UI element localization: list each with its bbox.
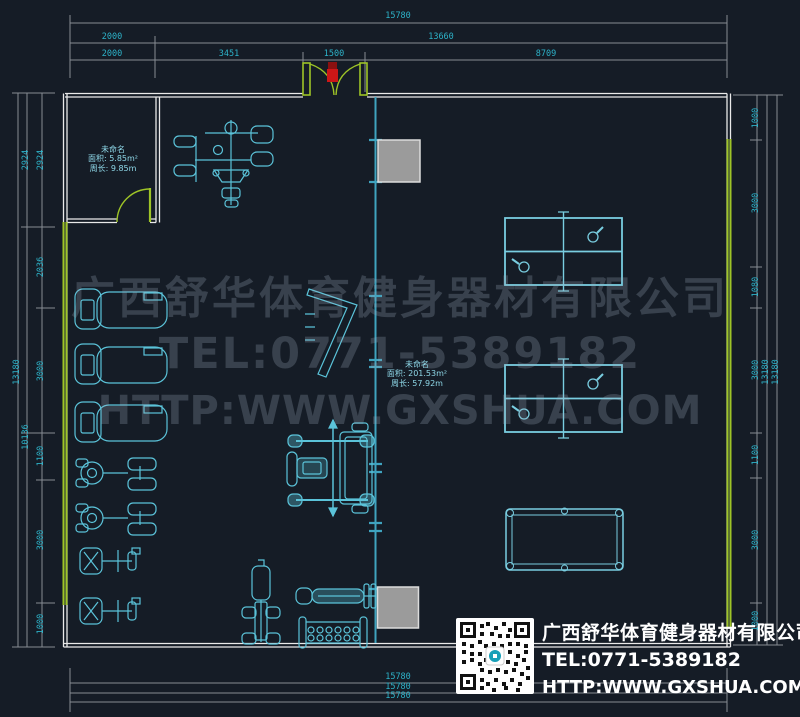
multi-gym-machine — [174, 120, 273, 207]
watermark-company: 广西舒华体育健身器材有限公司 — [71, 262, 729, 326]
billiard-table — [506, 508, 623, 571]
company-info-block: 广西舒华体育健身器材有限公司 TEL:0771-5389182 HTTP:WWW… — [456, 618, 800, 701]
top-dimension-chain — [70, 15, 727, 92]
room-area: 面积: 5.85m² — [88, 154, 138, 163]
dim-label: 8709 — [536, 49, 556, 59]
dim-label: 2036 — [36, 257, 46, 277]
dim-label: 13180 — [12, 359, 22, 385]
dim-label: 3000 — [751, 360, 761, 380]
rowing-bench — [80, 598, 140, 624]
dim-label: 15780 — [385, 691, 411, 701]
dim-label: 3000 — [751, 530, 761, 550]
room-perimeter: 周长: 9.85m — [88, 164, 138, 173]
room-perimeter: 周长: 57.92m — [387, 379, 447, 388]
dumbbell-rack — [299, 617, 367, 648]
footer-tel: TEL:0771-5389182 — [542, 647, 800, 674]
treadmill — [75, 344, 167, 384]
dim-label: 1500 — [324, 49, 344, 59]
cad-floor-plan: 广西舒华体育健身器材有限公司 TEL:0771-5389182 HTTP:WWW… — [0, 0, 800, 717]
dim-label: 13180 — [761, 359, 771, 385]
dim-label: 1000 — [36, 614, 46, 634]
weight-stack-machine — [242, 560, 280, 644]
dim-label: 1100 — [751, 445, 761, 465]
room-area: 面积: 201.53m² — [387, 369, 447, 378]
dim-label: 2000 — [102, 32, 122, 42]
dim-label: 10136 — [21, 424, 31, 450]
watermark-url: HTTP:WWW.GXSHUA.COM — [98, 388, 703, 434]
dim-label: 15780 — [385, 672, 411, 682]
dim-label: 13180 — [771, 359, 781, 385]
dim-label: 2000 — [102, 49, 122, 59]
dim-label: 1100 — [36, 446, 46, 466]
room-label-main: 未命名 面积: 201.53m² 周长: 57.92m — [387, 360, 447, 388]
footer-url: HTTP:WWW.GXSHUA.COM — [542, 674, 800, 701]
door-marker — [327, 62, 338, 82]
qr-code — [456, 618, 534, 694]
bench-press-station — [287, 420, 374, 516]
rowing-bench — [80, 548, 140, 574]
dim-label: 15780 — [385, 11, 411, 21]
dim-label: 13660 — [428, 32, 454, 42]
room-label-small: 未命名 面积: 5.85m² 周长: 9.85m — [88, 145, 138, 173]
dim-label: 3000 — [751, 193, 761, 213]
footer-company-name: 广西舒华体育健身器材有限公司 — [542, 620, 800, 647]
dim-label: 3000 — [36, 530, 46, 550]
room-door — [117, 188, 150, 222]
dim-label: 1000 — [751, 108, 761, 128]
dim-label: 2924 — [36, 150, 46, 170]
dim-label: 3000 — [36, 361, 46, 381]
dim-label: 2924 — [21, 150, 31, 170]
dim-label: 1080 — [751, 277, 761, 297]
flat-bench — [296, 584, 376, 608]
exercise-bike — [76, 458, 156, 490]
dim-label: 3451 — [219, 49, 239, 59]
exercise-bike — [76, 503, 156, 535]
